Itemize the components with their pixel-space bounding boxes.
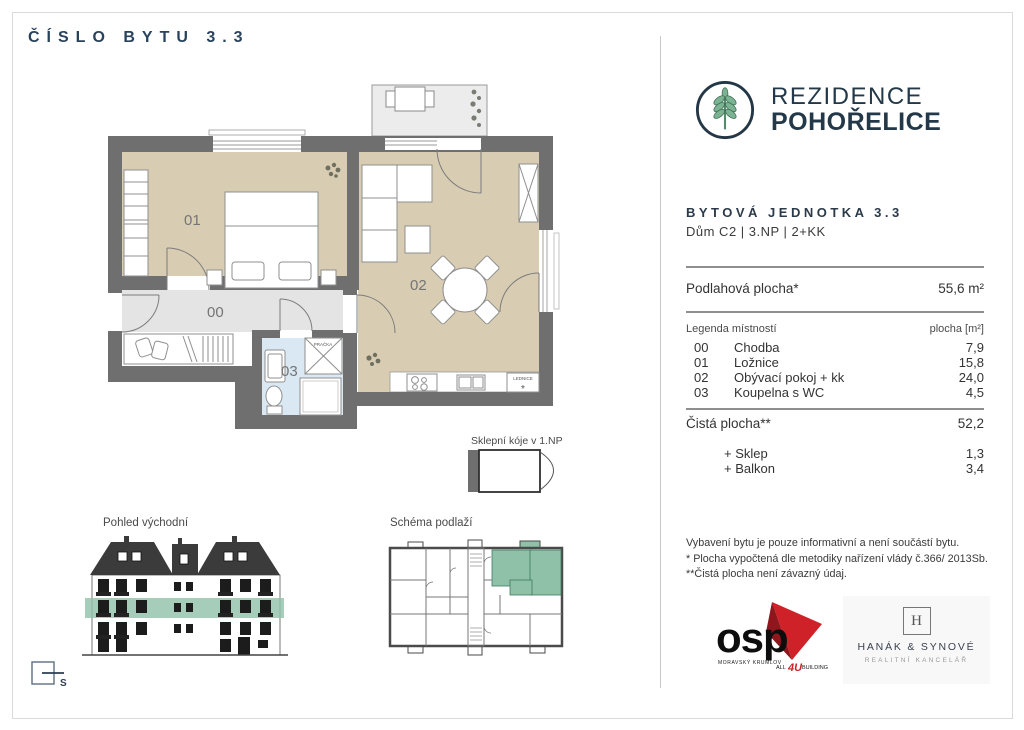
osp-tag-num: 4U — [787, 662, 803, 674]
unit-heading: BYTOVÁ JEDNOTKA 3.3 — [686, 205, 903, 220]
elevation-label: Pohled východní — [103, 517, 188, 529]
floor-schema-drawing — [380, 534, 575, 664]
legend-row: 01 Ložnice 15,8 — [686, 355, 984, 370]
room-name: Obývací pokoj + kk — [734, 370, 959, 385]
unit-subheading: Dům C2 | 3.NP | 2+KK — [686, 224, 826, 239]
elevation-drawing — [80, 534, 290, 666]
room-area: 15,8 — [959, 355, 984, 370]
net-area-row: Čistá plocha** 52,2 — [686, 416, 984, 431]
extra-area-row: + Balkon 3,4 — [686, 461, 984, 476]
extra-area-row: + Sklep 1,3 — [686, 446, 984, 461]
schema-label: Schéma podlaží — [390, 517, 472, 529]
net-area-value: 52,2 — [958, 416, 984, 431]
legend-row: 02 Obývací pokoj + kk 24,0 — [686, 370, 984, 385]
room-area: 7,9 — [966, 340, 984, 355]
divider — [686, 408, 984, 410]
hanak-logo: H HANÁK & SYNOVÉ REALITNÍ KANCELÁŘ — [843, 596, 990, 684]
extra-label: + Balkon — [686, 461, 775, 476]
divider — [686, 311, 984, 313]
osp-tag-pre: ALL — [776, 665, 786, 671]
brand-logo: REZIDENCE POHOŘELICE — [694, 79, 941, 141]
legend-header-left: Legenda místností — [686, 323, 777, 335]
room-label-02: 02 — [410, 277, 427, 294]
cellar-diagram: Sklepní kóje v 1.NP — [468, 435, 563, 492]
osp-tag-post: BUILDING — [802, 665, 828, 671]
fridge-snowflake-icon: * — [521, 384, 525, 395]
page-title: ČÍSLO BYTU 3.3 — [28, 29, 250, 47]
room-code: 02 — [686, 370, 734, 385]
room-area: 24,0 — [959, 370, 984, 385]
room-area: 4,5 — [966, 385, 984, 400]
extra-label: + Sklep — [686, 446, 768, 461]
fridge-label: LEDNICE — [513, 376, 533, 381]
room-label-03: 03 — [281, 363, 298, 380]
divider — [686, 266, 984, 268]
room-label-01: 01 — [184, 212, 201, 229]
hanak-monogram: H — [903, 607, 931, 635]
note-line: Vybavení bytu je pouze informativní a ne… — [686, 536, 998, 552]
floor-area-value: 55,6 m² — [938, 281, 984, 296]
room-name: Chodba — [734, 340, 966, 355]
vertical-divider — [660, 36, 661, 688]
disclaimer-notes: Vybavení bytu je pouze informativní a ne… — [686, 536, 998, 583]
hanak-subtitle: REALITNÍ KANCELÁŘ — [843, 657, 990, 664]
legend-header: Legenda místností plocha [m²] — [686, 323, 984, 335]
osp-city: MORAVSKÝ KRUMLOV — [718, 659, 782, 666]
floor-plan: PRAČKA LEDNICE * 01 00 02 03 Sklepní k — [95, 78, 570, 503]
hall-closet-furniture — [124, 334, 233, 364]
room-name: Ložnice — [734, 355, 959, 370]
room-name: Koupelna s WC — [734, 385, 966, 400]
wheat-logo-icon — [694, 79, 756, 141]
legend-header-right: plocha [m²] — [930, 323, 984, 335]
washer-label: PRAČKA — [314, 341, 333, 347]
hanak-name: HANÁK & SYNOVÉ — [843, 641, 990, 653]
note-line: * Plocha vypočtená dle metodiky nařízení… — [686, 552, 998, 568]
brand-name-line1: REZIDENCE — [771, 84, 941, 109]
osp-name: osp — [716, 614, 788, 661]
room-code: 00 — [686, 340, 734, 355]
note-line: **Čistá plocha není závazný údaj. — [686, 567, 998, 583]
compass: S — [24, 658, 72, 698]
balcony — [372, 85, 487, 136]
floor-area-label: Podlahová plocha* — [686, 281, 799, 296]
room-label-00: 00 — [207, 304, 224, 321]
extra-value: 3,4 — [966, 461, 984, 476]
osp-logo: osp MORAVSKÝ KRUMLOV ALL 4U BUILDING — [716, 600, 830, 680]
floor-area-row: Podlahová plocha* 55,6 m² — [686, 281, 984, 296]
room-code: 03 — [686, 385, 734, 400]
extra-value: 1,3 — [966, 446, 984, 461]
net-area-label: Čistá plocha** — [686, 416, 771, 431]
legend-row: 03 Koupelna s WC 4,5 — [686, 385, 984, 400]
room-code: 01 — [686, 355, 734, 370]
cellar-label: Sklepní kóje v 1.NP — [471, 435, 563, 447]
legend-row: 00 Chodba 7,9 — [686, 340, 984, 355]
compass-label: S — [60, 678, 67, 689]
brand-name-line2: POHOŘELICE — [771, 109, 941, 135]
